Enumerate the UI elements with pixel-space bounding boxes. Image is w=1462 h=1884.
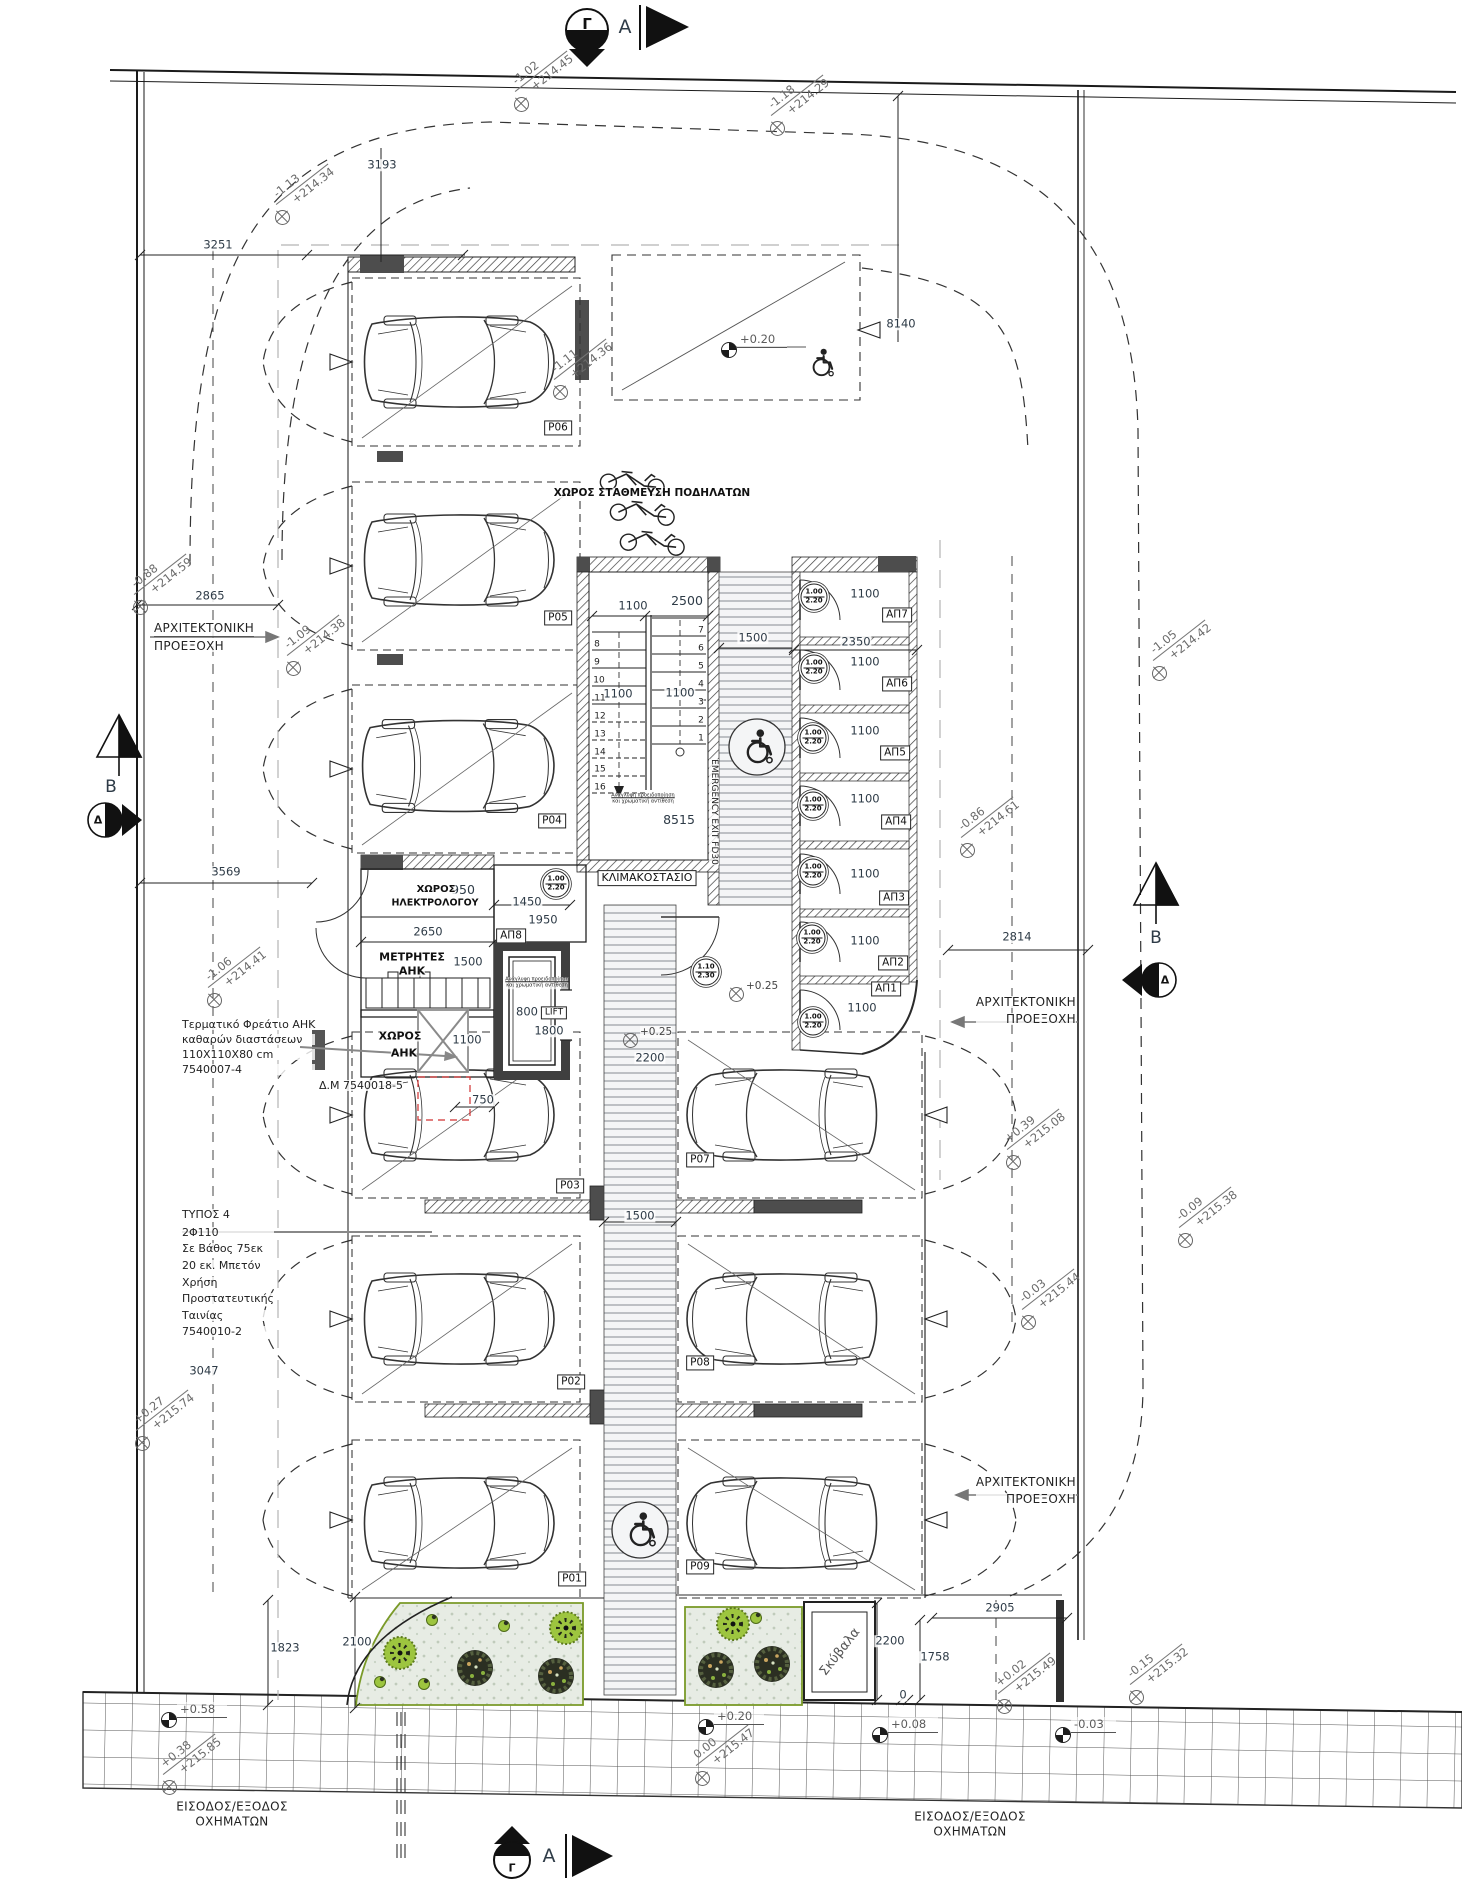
parking-tag-p01: P01 <box>558 1571 586 1586</box>
arch-projection-right-2: ΑΡΧΙΤΕΚΤΟΝΙΚΗ ΠΡΟΕΞΟΧΗ <box>976 1476 1076 1505</box>
stair-num: 4 <box>698 681 704 690</box>
dim-2200-bottom: 2200 <box>874 1635 905 1647</box>
dim-1100-ap2: 1100 <box>849 935 880 947</box>
storage-tag-ap1: ΑΠ1 <box>871 981 901 996</box>
stair-num: 13 <box>594 731 605 740</box>
stair-num: 5 <box>698 663 704 672</box>
benchmark-icon <box>161 1712 177 1728</box>
stair-num: 2 <box>698 717 704 726</box>
section-label-b-left: B <box>105 777 117 797</box>
dim-2865: 2865 <box>194 590 225 602</box>
section-label-a-bottom: A <box>543 1845 556 1867</box>
door-height-tag: 1.002.20 <box>800 859 827 886</box>
arch-projection-left: ΑΡΧΙΤΕΚΤΟΝΙΚΗ ΠΡΟΕΞΟΧΗ <box>154 622 254 652</box>
dim-1100-ap6: 1100 <box>849 656 880 668</box>
room-label-ahk-1: ΧΩΡΟΣ <box>379 1031 422 1042</box>
dim-2814: 2814 <box>1001 931 1032 943</box>
floor-plan-canvas: Γ A Γ A B B Δ Δ 3193 3251 8140 2865 3569… <box>0 0 1462 1884</box>
storage-tag-ap2: ΑΠ2 <box>878 955 908 970</box>
room-label-staircase: ΚΛΙΜΑΚΟΣΤΑΣΙΟ <box>598 870 697 886</box>
stair-num: 9 <box>594 659 600 668</box>
dim-750: 750 <box>471 1094 495 1106</box>
room-label-lift: LIFT <box>541 1006 567 1019</box>
dim-2100: 2100 <box>341 1636 372 1648</box>
dim-0: 0 <box>898 1689 907 1701</box>
dim-1100-left-flight: 1100 <box>602 688 633 700</box>
stair-num: 12 <box>594 713 605 722</box>
storage-tag-ap4: ΑΠ4 <box>881 814 911 829</box>
dim-8140: 8140 <box>885 318 916 330</box>
section-label-b-right: B <box>1150 928 1162 948</box>
spot-marker-icon <box>729 987 744 1002</box>
storage-tag-ap6: ΑΠ6 <box>882 676 912 691</box>
dim-3251: 3251 <box>202 239 233 251</box>
dim-1100-ahk: 1100 <box>451 1034 482 1046</box>
dim-1500-corridor: 1500 <box>737 632 768 644</box>
stair-num: 14 <box>594 749 605 758</box>
stair-num: 11 <box>594 695 605 704</box>
parking-tag-p05: P05 <box>544 610 572 625</box>
storage-tag-ap3: ΑΠ3 <box>879 890 909 905</box>
dim-1100-ap1: 1100 <box>846 1002 877 1014</box>
terminal-note: Τερματικό Φρεάτιο ΑΗΚ καθαρών διαστάσεων… <box>182 1019 315 1075</box>
parking-tag-p06: P06 <box>544 420 572 435</box>
stair-num: 10 <box>593 677 604 686</box>
dim-1100-ap7: 1100 <box>849 588 880 600</box>
dim-1500-walkway: 1500 <box>624 1210 655 1222</box>
door-height-tag: 1.002.20 <box>801 584 828 611</box>
parking-tag-p08: P08 <box>686 1355 714 1370</box>
storage-tag-ap8: ΑΠ8 <box>496 928 526 943</box>
benchmark-icon <box>1055 1727 1071 1743</box>
dim-1500-meters: 1500 <box>452 956 483 968</box>
dim-1450: 1450 <box>511 896 542 908</box>
dim-1100-ap5: 1100 <box>849 725 880 737</box>
door-height-tag: 1.002.20 <box>801 655 828 682</box>
dim-1100-stair-top: 1100 <box>617 600 648 612</box>
parking-tag-p04: P04 <box>538 813 566 828</box>
parking-tag-p02: P02 <box>557 1374 585 1389</box>
dim-8515: 8515 <box>662 814 696 827</box>
vehicle-entry-label-right: ΕΙΣΟΔΟΣ/ΕΞΟΔΟΣ ΟΧΗΜΑΤΩΝ <box>914 1811 1025 1838</box>
storage-tag-ap7: ΑΠ7 <box>882 607 912 622</box>
dim-1823: 1823 <box>269 1642 300 1654</box>
parking-tag-p07: P07 <box>686 1152 714 1167</box>
typos-note: ΤΥΠΟΣ 4 2Φ110 Σε Βάθος 75εκ 20 εκ. Μπετό… <box>182 1209 274 1337</box>
dim-3193: 3193 <box>366 159 397 171</box>
dm-note: Δ.Μ 7540018-5 <box>319 1080 403 1091</box>
room-label-meters-2: ΑΗΚ <box>399 966 425 977</box>
dim-2350: 2350 <box>840 636 871 648</box>
dim-2905: 2905 <box>984 1602 1015 1614</box>
dim-800: 800 <box>515 1006 539 1018</box>
stair-num: 15 <box>594 766 605 775</box>
text-layer: Γ A Γ A B B Δ Δ 3193 3251 8140 2865 3569… <box>0 0 1462 1884</box>
section-marker-gamma-top: Γ <box>582 15 592 33</box>
door-height-tag: 1.002.20 <box>543 871 570 898</box>
spot-marker-icon <box>623 1033 638 1048</box>
stair-num: 8 <box>594 641 600 650</box>
door-height-tag-alt: 1.102.30 <box>693 959 720 986</box>
parking-tag-p09: P09 <box>686 1559 714 1574</box>
dim-3569: 3569 <box>210 866 241 878</box>
room-label-ahk-2: ΑΗΚ <box>391 1048 417 1059</box>
dim-3047: 3047 <box>188 1365 219 1377</box>
dim-2200-lift: 2200 <box>634 1052 665 1064</box>
room-label-garbage: Σκύβαλα <box>817 1626 862 1679</box>
stair-num: 6 <box>698 645 704 654</box>
arch-projection-right-1: ΑΡΧΙΤΕΚΤΟΝΙΚΗ ΠΡΟΕΞΟΧΗ <box>976 996 1076 1025</box>
stair-num: 7 <box>698 627 704 636</box>
benchmark-icon <box>698 1719 714 1735</box>
room-label-electrical-1: ΧΩΡΟΣ <box>417 885 456 895</box>
parking-tag-p03: P03 <box>556 1178 584 1193</box>
storage-tag-ap5: ΑΠ5 <box>880 745 910 760</box>
dim-1800: 1800 <box>533 1025 564 1037</box>
tactile-note-stair: Ανάγλυφη προειδοποίησηκαι χρωματική αντί… <box>611 793 674 805</box>
tactile-note-lift: Ανάγλυφη προειδοποίησηκαι χρωματική αντί… <box>505 977 568 989</box>
door-height-tag: 1.002.20 <box>800 792 827 819</box>
dim-1950: 1950 <box>527 914 558 926</box>
section-marker-delta-right: Δ <box>1161 974 1170 987</box>
door-height-tag: 1.002.20 <box>800 725 827 752</box>
emergency-exit-label: EMERGENCY EXIT FD30 <box>709 759 719 865</box>
benchmark-icon <box>872 1727 888 1743</box>
dim-2650: 2650 <box>412 926 443 938</box>
room-label-electrical-2: ΗΛΕΚΤΡΟΛΟΓΟΥ <box>391 898 478 908</box>
vehicle-entry-label-left: ΕΙΣΟΔΟΣ/ΕΞΟΔΟΣ ΟΧΗΜΑΤΩΝ <box>176 1801 287 1828</box>
door-height-tag: 1.002.20 <box>799 925 826 952</box>
section-label-a-top: A <box>619 16 632 38</box>
section-marker-gamma-bottom: Γ <box>508 1862 515 1875</box>
door-height-tag: 1.002.20 <box>800 1009 827 1036</box>
stair-num: 16 <box>594 784 605 793</box>
dim-1100-ap4: 1100 <box>849 793 880 805</box>
stair-num: 1 <box>698 735 704 744</box>
dim-1100-ap3: 1100 <box>849 868 880 880</box>
stair-num: 3 <box>698 699 704 708</box>
room-label-meters-1: ΜΕΤΡΗΤΕΣ <box>379 952 445 963</box>
dim-1758: 1758 <box>919 1651 950 1663</box>
room-label-bike-parking: ΧΩΡΟΣ ΣΤΑΘΜΕΥΣΗ ΠΟΔΗΛΑΤΩΝ <box>554 488 750 499</box>
dim-1100-right-flight: 1100 <box>664 687 695 699</box>
benchmark-icon <box>721 342 737 358</box>
dim-2500: 2500 <box>670 595 704 608</box>
section-marker-delta-left: Δ <box>94 814 103 827</box>
